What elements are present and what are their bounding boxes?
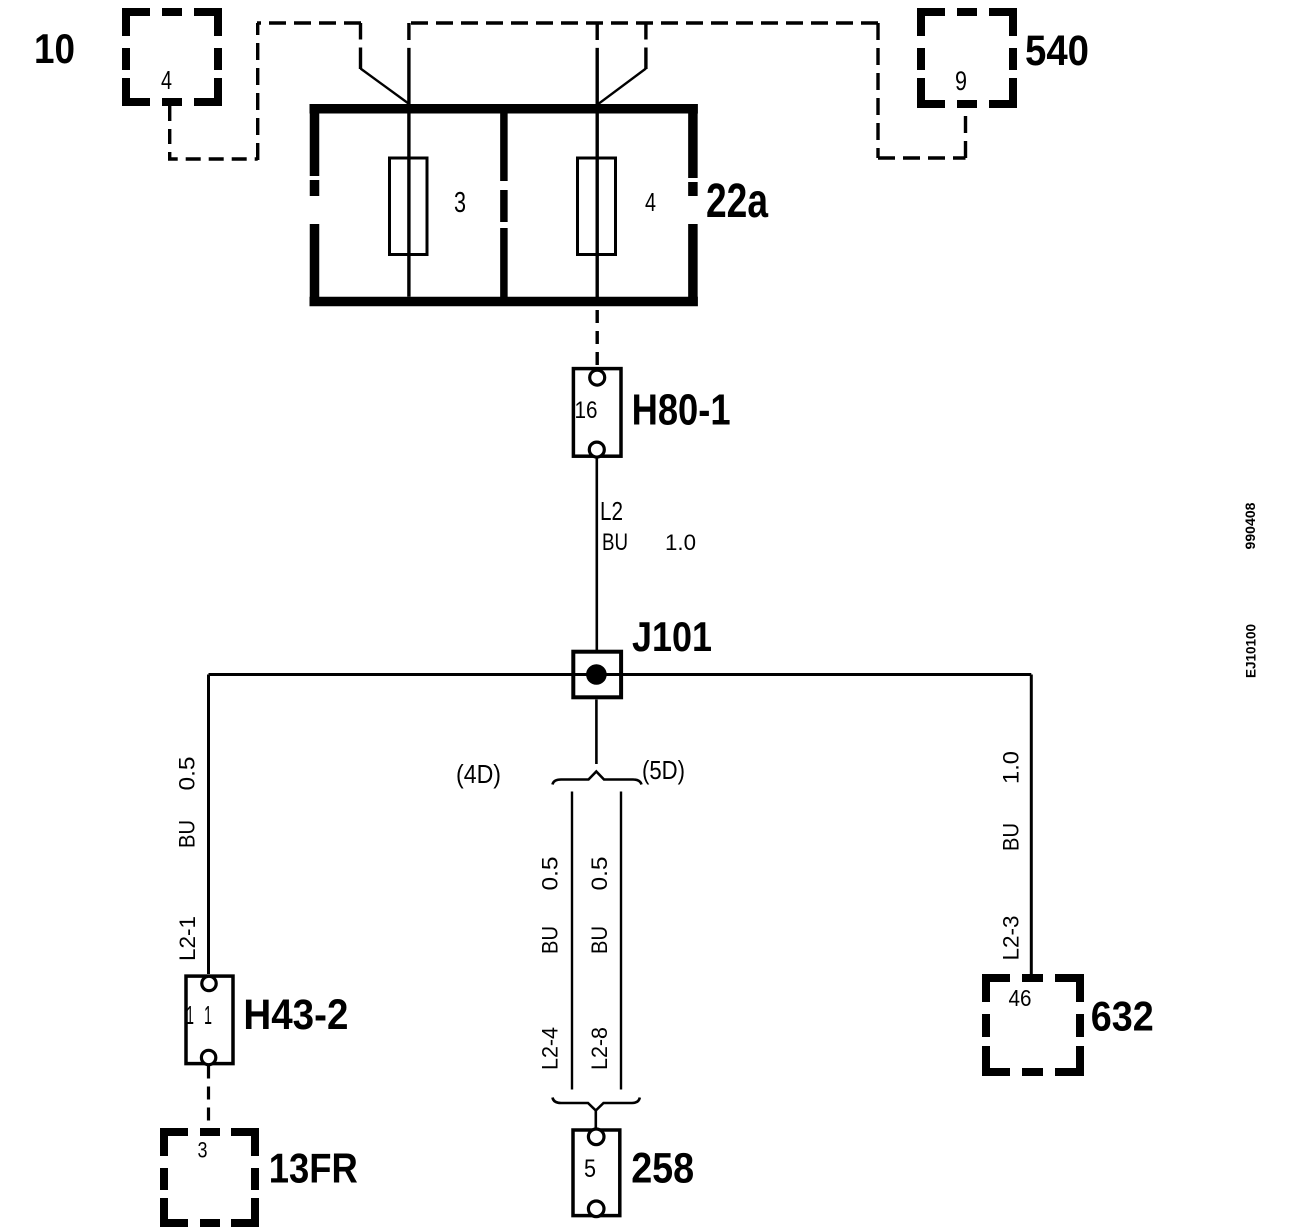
svg-text:BU: BU xyxy=(602,529,628,556)
svg-text:L2-4: L2-4 xyxy=(538,1027,563,1070)
svg-text:1: 1 xyxy=(204,1000,212,1030)
svg-text:9: 9 xyxy=(955,66,967,96)
svg-text:3: 3 xyxy=(198,1138,208,1163)
svg-text:1: 1 xyxy=(186,1000,194,1030)
svg-text:BU: BU xyxy=(999,823,1024,851)
svg-text:5: 5 xyxy=(584,1155,596,1183)
svg-text:1.0: 1.0 xyxy=(999,751,1024,784)
svg-text:16: 16 xyxy=(575,397,598,424)
svg-text:46: 46 xyxy=(1009,985,1032,1011)
svg-text:J101: J101 xyxy=(632,613,712,660)
svg-text:BU: BU xyxy=(538,926,563,954)
svg-text:BU: BU xyxy=(587,926,612,954)
svg-text:L2-3: L2-3 xyxy=(999,916,1024,961)
svg-text:632: 632 xyxy=(1091,993,1154,1040)
svg-text:540: 540 xyxy=(1025,27,1089,75)
svg-text:0.5: 0.5 xyxy=(175,757,200,791)
svg-text:0.5: 0.5 xyxy=(587,857,612,891)
svg-text:BU: BU xyxy=(175,820,200,848)
svg-text:H80-1: H80-1 xyxy=(632,386,731,435)
svg-text:L2-8: L2-8 xyxy=(587,1027,612,1070)
svg-text:1.0: 1.0 xyxy=(665,530,696,555)
svg-text:0.5: 0.5 xyxy=(538,857,563,891)
svg-text:4: 4 xyxy=(645,187,656,217)
svg-text:22a: 22a xyxy=(706,175,768,228)
svg-text:L2: L2 xyxy=(600,496,623,526)
svg-text:L2-1: L2-1 xyxy=(175,916,200,961)
svg-text:4: 4 xyxy=(161,65,172,95)
svg-text:H43-2: H43-2 xyxy=(243,991,348,1039)
svg-text:258: 258 xyxy=(631,1144,694,1192)
svg-text:3: 3 xyxy=(454,187,466,219)
svg-text:990408: 990408 xyxy=(1242,502,1258,549)
svg-text:13FR: 13FR xyxy=(269,1144,358,1191)
svg-text:(5D): (5D) xyxy=(642,755,685,785)
svg-text:EJ10100: EJ10100 xyxy=(1243,624,1259,678)
svg-text:10: 10 xyxy=(34,25,75,72)
svg-text:(4D): (4D) xyxy=(456,759,501,789)
